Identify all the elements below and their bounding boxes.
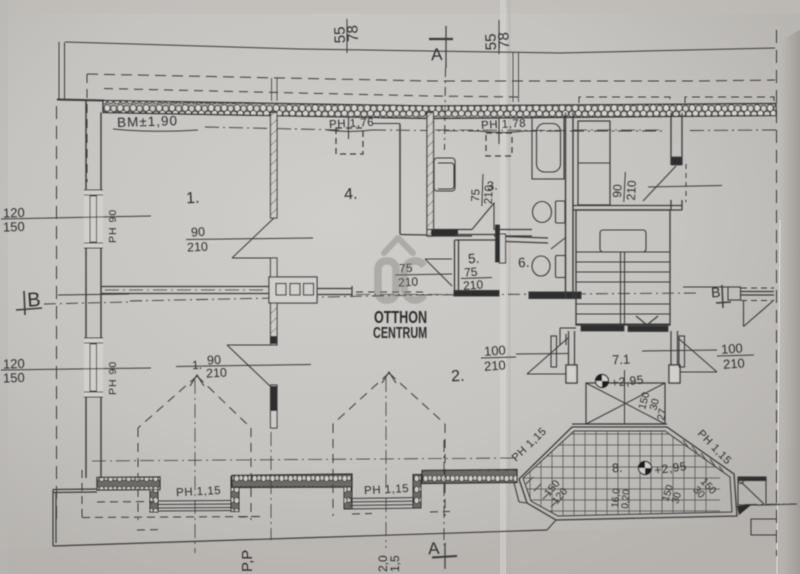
svg-text:7.1: 7.1 [612,351,631,367]
svg-text:100: 100 [721,340,744,356]
svg-text:27: 27 [655,408,669,422]
svg-text:90: 90 [610,184,625,198]
svg-text:3.: 3. [486,179,498,194]
svg-text:A: A [428,539,441,559]
svg-text:2.: 2. [451,368,465,386]
svg-text:BM±1,90: BM±1,90 [117,113,178,130]
svg-text:210: 210 [484,357,507,373]
svg-text:4.: 4. [344,186,358,204]
svg-text:210: 210 [187,240,209,255]
svg-text:0,20: 0,20 [620,488,633,509]
svg-text:PH 1,15: PH 1,15 [176,485,222,499]
svg-text:210: 210 [398,275,419,290]
svg-text:75: 75 [399,261,413,276]
svg-text:CENTRUM: CENTRUM [373,324,427,341]
svg-text:1.: 1. [186,190,200,208]
svg-text:PH 90: PH 90 [107,209,119,243]
svg-text:A: A [431,45,444,64]
svg-text:78: 78 [344,25,362,42]
svg-text:1.: 1. [192,358,203,373]
svg-text:1,5: 1,5 [388,555,402,572]
svg-text:100: 100 [484,342,507,358]
svg-text:B: B [711,284,721,300]
svg-text:78: 78 [495,32,513,49]
svg-text:P,P: P,P [239,550,256,572]
svg-text:210: 210 [723,355,746,371]
svg-text:210: 210 [206,366,228,381]
svg-text:6.: 6. [518,255,530,271]
svg-text:210: 210 [463,277,484,292]
svg-text:210: 210 [624,180,639,201]
svg-text:8.: 8. [612,461,623,476]
svg-text:150: 150 [3,219,25,235]
svg-text:150: 150 [3,370,25,386]
svg-text:PH 1,15: PH 1,15 [364,483,410,497]
svg-text:PH 90: PH 90 [107,361,119,395]
svg-text:75: 75 [470,189,482,202]
svg-text:90: 90 [191,225,206,240]
